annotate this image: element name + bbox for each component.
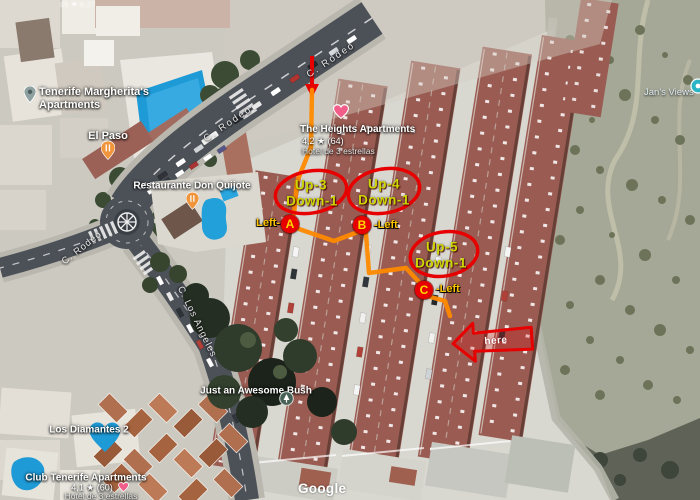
satellite-map[interactable]: 05 ❤ 8:27 C. Rodeo C. Rodeo C. Rodeo C. … xyxy=(0,0,700,500)
route-stop-c: C xyxy=(415,281,433,299)
unit-3-line2: Down-1 xyxy=(415,256,467,271)
unit-1-line2: Down-1 xyxy=(286,194,338,209)
tree-marker-icon[interactable] xyxy=(279,391,294,406)
poi-don-quijote[interactable]: Restaurante Don Quijote xyxy=(133,181,250,192)
route-stop-c-label: -Left xyxy=(436,283,460,295)
google-logo: Google xyxy=(298,481,346,496)
cropped-top-label: 05 ❤ 8:27 xyxy=(60,1,96,9)
route-stop-b-label: -Left xyxy=(374,219,398,231)
poi-los-diamantes[interactable]: Los Diamantes 2 xyxy=(49,425,128,436)
route-stop-a: A xyxy=(281,215,299,233)
roundabout xyxy=(100,195,154,249)
arrow-here-label: here xyxy=(484,335,508,348)
hotel-heart-pin-icon[interactable] xyxy=(333,104,349,119)
poi-club-tenerife-category: Hotel de 3 estrellas xyxy=(65,491,138,500)
unit-2-line2: Down-1 xyxy=(358,193,410,208)
unit-3-line1: Up-5 xyxy=(426,240,458,255)
restaurant-pin-icon[interactable] xyxy=(101,141,115,160)
poi-heights-category: Hotel de 3 estrellas xyxy=(302,146,375,156)
poi-margheritas-line2[interactable]: Apartments xyxy=(39,99,100,111)
poi-jans-views[interactable]: Jan's Views xyxy=(644,87,694,98)
unit-2-line1: Up-4 xyxy=(368,177,400,192)
route-stop-b: B xyxy=(353,216,371,234)
poi-margheritas-line1[interactable]: Tenerife Margherita's xyxy=(39,86,149,98)
unit-1-line1: Up-3 xyxy=(295,178,327,193)
photo-marker-icon[interactable] xyxy=(690,78,700,94)
apartment-pin-icon[interactable] xyxy=(24,86,36,103)
restaurant-pin-icon[interactable] xyxy=(186,192,199,210)
route-stop-a-label: Left- xyxy=(240,217,280,229)
poi-heights-name[interactable]: The Heights Apartments xyxy=(300,124,415,135)
poi-awesome-bush[interactable]: Just an Awesome Bush xyxy=(200,386,312,397)
